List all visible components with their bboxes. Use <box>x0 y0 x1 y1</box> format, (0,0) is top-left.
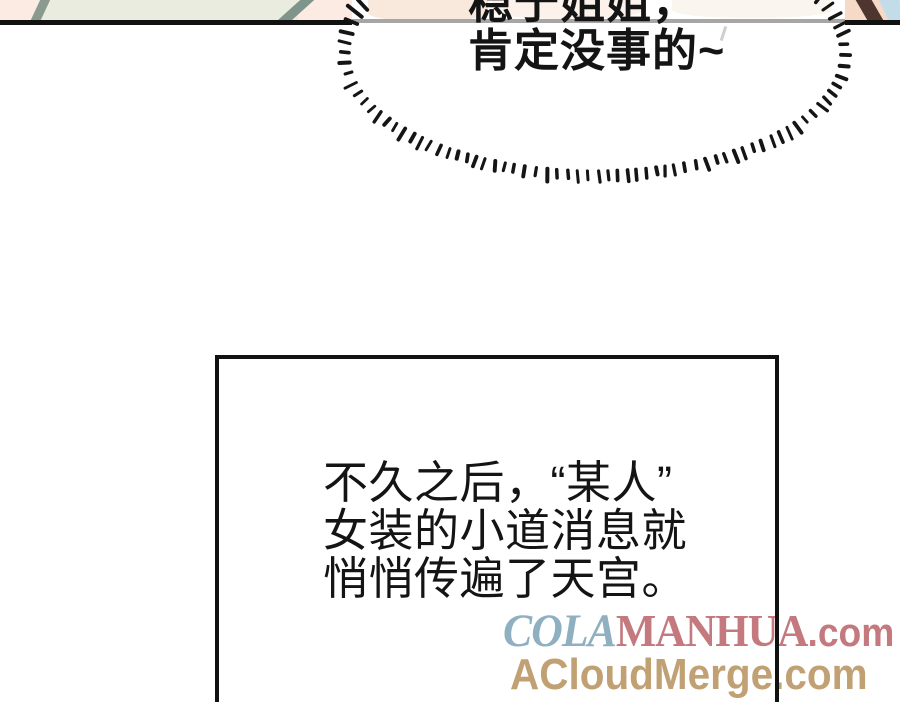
speech-line: 稳于姐姐， <box>468 0 725 27</box>
watermark-dotcom-text: .com <box>808 611 895 655</box>
speech-bubble-text: 稳于姐姐， 肯定没事的~ <box>468 0 725 75</box>
bubble-hatch-outline <box>0 0 900 260</box>
narration-line: 悄悄传遍了天宫。 <box>323 555 687 603</box>
speech-line: 肯定没事的~ <box>468 27 725 75</box>
narration-line: 不久之后，“某人” <box>323 459 687 507</box>
art-sage-fabric <box>40 0 298 21</box>
narration-box: 不久之后，“某人” 女装的小道消息就 悄悄传遍了天宫。 <box>215 355 779 702</box>
narration-text: 不久之后，“某人” 女装的小道消息就 悄悄传遍了天宫。 <box>323 459 687 603</box>
comic-page: 稳于姐姐， 肯定没事的~ COLAMANHUA.com ACloudMerge.… <box>0 0 900 702</box>
narration-line: 女装的小道消息就 <box>323 507 687 555</box>
